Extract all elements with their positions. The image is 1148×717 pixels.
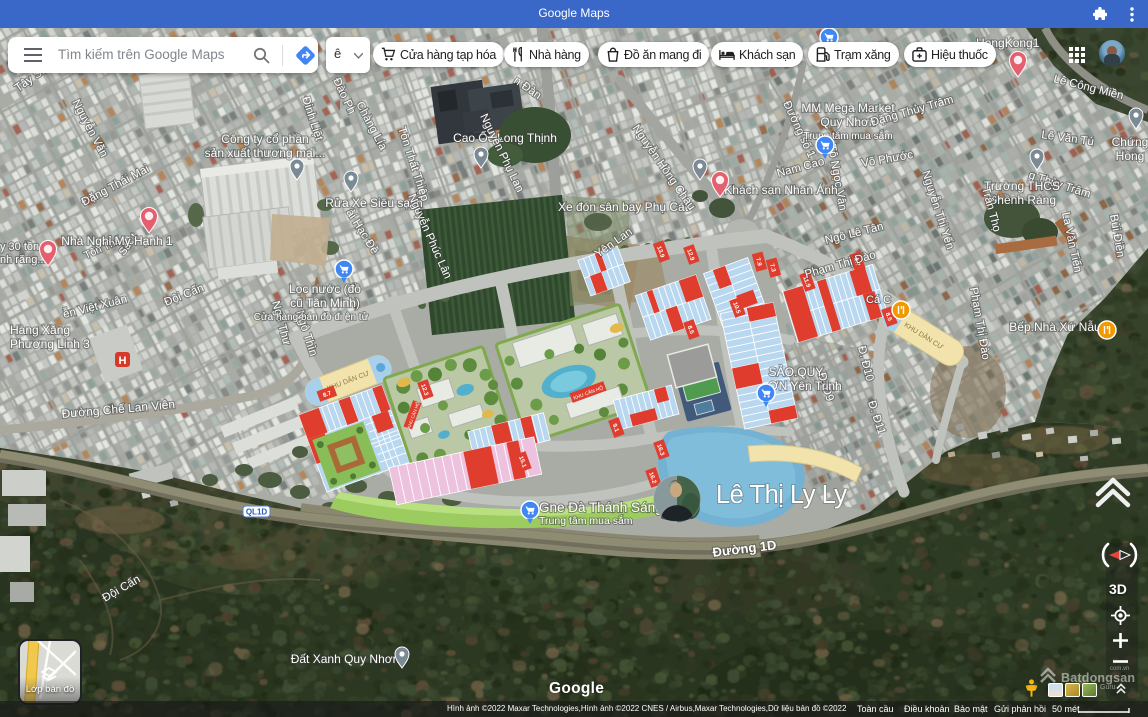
svg-text:Quy Nhơn: Quy Nhơn <box>820 115 875 129</box>
svg-text:sản xuất thương mại...: sản xuất thương mại... <box>205 146 326 160</box>
svg-text:Hàng Xăng: Hàng Xăng <box>10 323 70 337</box>
svg-text:Bếp.Nhà Xứ Nẫu: Bếp.Nhà Xứ Nẫu <box>1009 319 1100 334</box>
svg-text:SẢO.QUY: SẢO.QUY <box>769 364 824 379</box>
svg-text:Lọc nước (đồ: Lọc nước (đồ <box>289 282 361 296</box>
svg-text:Xe đón sân bay Phụ Cát: Xe đón sân bay Phụ Cát <box>558 200 689 214</box>
svg-text:Đất Xanh Quy Nhơn: Đất Xanh Quy Nhơn <box>291 652 400 666</box>
svg-text:cũ Tân Minh): cũ Tân Minh) <box>290 296 360 310</box>
svg-text:Gne Đà Thánh Sáng: Gne Đà Thánh Sáng <box>539 500 663 515</box>
svg-text:QL1D: QL1D <box>246 508 268 517</box>
svg-text:Cao Ốc Long Thịnh: Cao Ốc Long Thịnh <box>453 130 557 145</box>
svg-text:y 30 tồn: y 30 tồn <box>0 241 39 253</box>
svg-text:Trung tâm mua sắm: Trung tâm mua sắm <box>539 514 633 527</box>
svg-text:Công ty cổ phần: Công ty cổ phần <box>221 132 308 146</box>
svg-text:nh răng...: nh răng... <box>0 254 46 266</box>
svg-text:Cửa hàng bán đồ đi ện tử: Cửa hàng bán đồ đi ện tử <box>254 311 369 323</box>
svg-text:Ghềnh Ráng: Ghềnh Ráng <box>988 193 1056 207</box>
svg-text:Khách sạn Nhân Ánh: Khách sạn Nhân Ánh <box>724 182 837 197</box>
svg-text:Trường THCS: Trường THCS <box>984 179 1060 193</box>
svg-text:Chứng: Chứng <box>1112 135 1148 149</box>
svg-text:MM Mega Market: MM Mega Market <box>801 101 895 115</box>
svg-text:Lê Thị Ly Ly: Lê Thị Ly Ly <box>716 481 847 509</box>
svg-text:Hồng: Hồng <box>1116 149 1145 163</box>
svg-text:Cá C: Cá C <box>866 294 891 306</box>
svg-text:ƠN Yên Trinh: ƠN Yên Trinh <box>768 379 841 393</box>
svg-text:H: H <box>119 355 127 367</box>
svg-text:Nhà Nghỉ Mỹ Hạnh 1: Nhà Nghỉ Mỹ Hạnh 1 <box>61 234 173 248</box>
svg-text:Phương Linh 3: Phương Linh 3 <box>10 337 90 351</box>
